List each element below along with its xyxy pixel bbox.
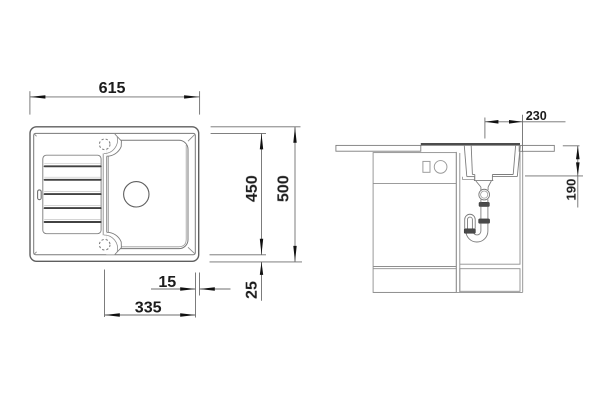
svg-text:15: 15 <box>158 273 176 291</box>
svg-text:500: 500 <box>274 175 292 202</box>
svg-text:615: 615 <box>99 79 126 97</box>
svg-text:335: 335 <box>135 298 162 316</box>
svg-text:450: 450 <box>243 175 261 202</box>
svg-text:190: 190 <box>564 179 579 201</box>
svg-text:25: 25 <box>243 281 261 299</box>
svg-text:230: 230 <box>526 109 547 123</box>
